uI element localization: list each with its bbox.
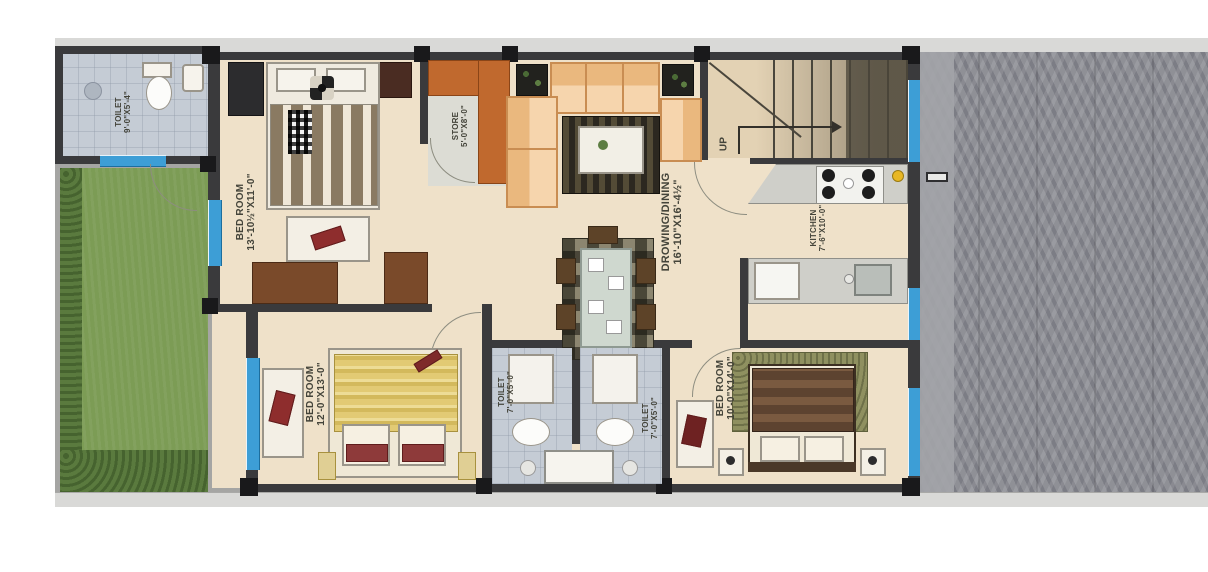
plate — [608, 276, 624, 290]
stair-steps — [756, 60, 908, 158]
stair-arrow-line — [738, 126, 834, 128]
stair-arrow-tail — [738, 126, 740, 154]
dining-chair — [556, 304, 576, 330]
wall-toilet-partition — [572, 348, 580, 444]
wall-left-upper — [208, 52, 220, 312]
plate — [588, 258, 604, 272]
plot-boundary-top — [55, 38, 1208, 53]
plot-boundary-bottom — [55, 492, 1208, 507]
wall-bedroom-store — [420, 52, 428, 144]
wall-bedroom2-right — [482, 304, 492, 492]
wall-bedroom1-bottom — [220, 304, 432, 312]
wall-middle-right — [740, 340, 908, 348]
stove-burner — [822, 169, 835, 182]
wc-toilet-bowl — [596, 418, 634, 446]
dresser-long — [252, 262, 338, 304]
label-bedroom-left: BED ROOM12'-0"X13'-0" — [305, 362, 327, 426]
bed-blanket-yellow — [334, 354, 458, 432]
wc-toilet-bowl — [512, 418, 550, 446]
floor-drain — [84, 82, 102, 100]
label-kitchen: KITCHEN7'-6"X10'-0" — [809, 205, 827, 252]
dresser-small — [384, 252, 428, 304]
wc-toilet-bowl — [146, 76, 172, 110]
sofa-seam — [585, 64, 587, 112]
wardrobe — [228, 62, 264, 116]
bed-footboard — [748, 462, 856, 472]
wall-bottom-exterior — [246, 484, 920, 492]
pillar — [902, 478, 920, 496]
coffee-table — [578, 126, 644, 174]
nightstand-lamp — [868, 456, 877, 465]
bed-blanket-striped — [270, 104, 378, 206]
wall-kitchen-left — [740, 258, 748, 344]
stove-burner — [862, 186, 875, 199]
pillar — [240, 478, 258, 496]
label-up: UP — [719, 137, 730, 151]
lawn — [60, 168, 208, 492]
pillar — [200, 156, 216, 172]
label-toilet-top: TOILET9'-0"X5'-4" — [114, 91, 132, 133]
floor-drain — [622, 460, 638, 476]
nightstand — [318, 452, 336, 480]
plate — [606, 320, 622, 334]
label-toilet-left: TOILET7'-0"X5'-0" — [497, 371, 515, 413]
wall — [55, 46, 63, 164]
stove-burner — [822, 186, 835, 199]
stove-burner — [862, 169, 875, 182]
pillow — [760, 436, 800, 462]
label-toilet-right: TOILET7'-0"X5'-0" — [641, 397, 659, 439]
pillow-band — [346, 444, 388, 462]
pillow — [804, 436, 844, 462]
sofa-three-seater — [550, 62, 660, 114]
label-bedroom-right: BED ROOM10'-0"X14'-0" — [715, 356, 737, 420]
coffee-table-decor — [598, 140, 608, 150]
label-bedroom-top: BED ROOM13'-10½"X11'-0" — [235, 173, 257, 250]
nightstand-lamp — [726, 456, 735, 465]
plant-box — [662, 64, 694, 96]
stair-arrow-head — [832, 121, 842, 133]
armchair-right — [660, 98, 702, 162]
sofa-seam — [508, 148, 556, 150]
sink-faucet — [844, 274, 854, 284]
pillar — [202, 46, 220, 64]
ceiling-fan-icon — [310, 76, 334, 100]
window — [246, 358, 260, 470]
sofa-two-seater-left — [506, 96, 558, 208]
dining-chair — [636, 258, 656, 284]
wash-basin — [182, 64, 204, 92]
stove-knob — [843, 178, 854, 189]
label-store: STORE5'-0"X8'-0" — [451, 105, 469, 147]
bed-blanket-brown — [752, 368, 854, 432]
window — [208, 200, 222, 266]
driveway-paving — [920, 52, 1208, 492]
hedge-left — [60, 168, 82, 492]
plate — [588, 300, 604, 314]
wall — [55, 46, 215, 54]
pillar — [202, 298, 218, 314]
bed-check-throw — [288, 110, 312, 154]
pillow-band — [402, 444, 444, 462]
floor-plan: TOILET9'-0"X5'-4" BED ROOM13'-10½"X — [0, 0, 1208, 572]
driveway-side-strip — [920, 52, 954, 492]
sofa-seam — [622, 64, 624, 112]
toilet-lobby — [544, 450, 614, 484]
shower-tray — [592, 354, 638, 404]
refrigerator — [754, 262, 800, 300]
label-drawing-dining: DROWING/DINING16'-10"X16'-4½" — [660, 173, 684, 272]
wall-top-exterior — [208, 52, 920, 60]
kitchen-faucet — [892, 170, 904, 182]
dining-chair — [556, 258, 576, 284]
kitchen-sink — [854, 264, 892, 296]
wall-toilet-bedroom3 — [662, 340, 670, 492]
plant-box — [516, 64, 548, 96]
hedge-bottom — [60, 450, 208, 492]
nightstand — [458, 452, 476, 480]
floor-drain — [520, 460, 536, 476]
dining-chair — [636, 304, 656, 330]
dining-chair — [588, 226, 618, 244]
gate-post — [926, 172, 948, 182]
pillar — [476, 478, 492, 494]
